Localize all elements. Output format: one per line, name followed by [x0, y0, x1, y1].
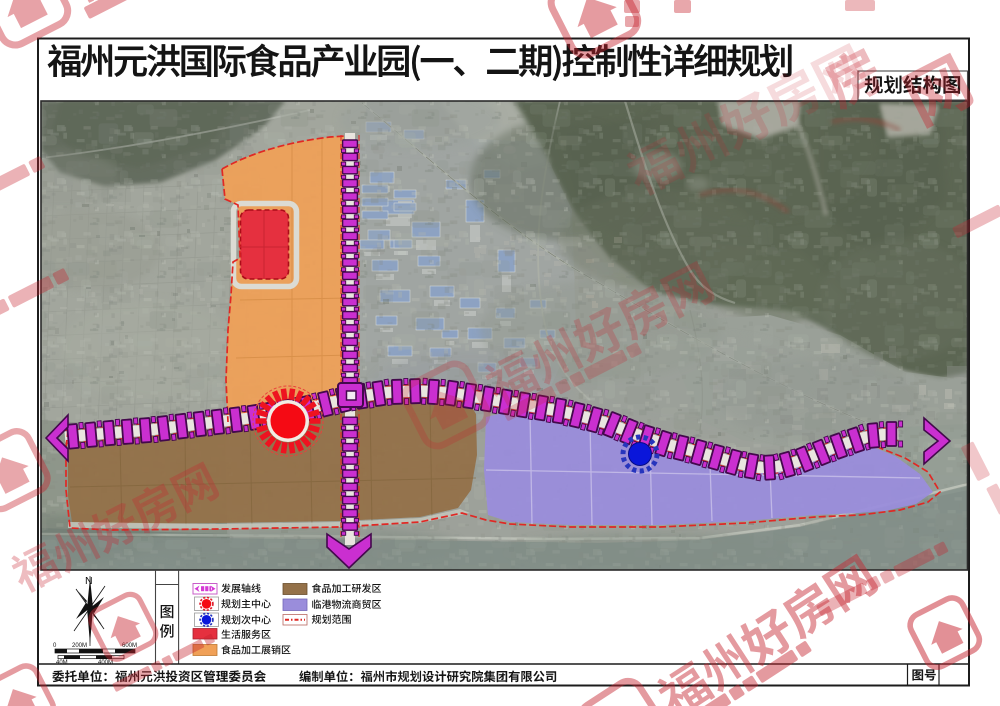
svg-text:N: N — [85, 575, 93, 587]
svg-text:400M: 400M — [98, 660, 113, 666]
svg-text:40M: 40M — [56, 660, 68, 666]
svg-text:0: 0 — [53, 643, 57, 649]
svg-text:200M: 200M — [72, 643, 87, 649]
